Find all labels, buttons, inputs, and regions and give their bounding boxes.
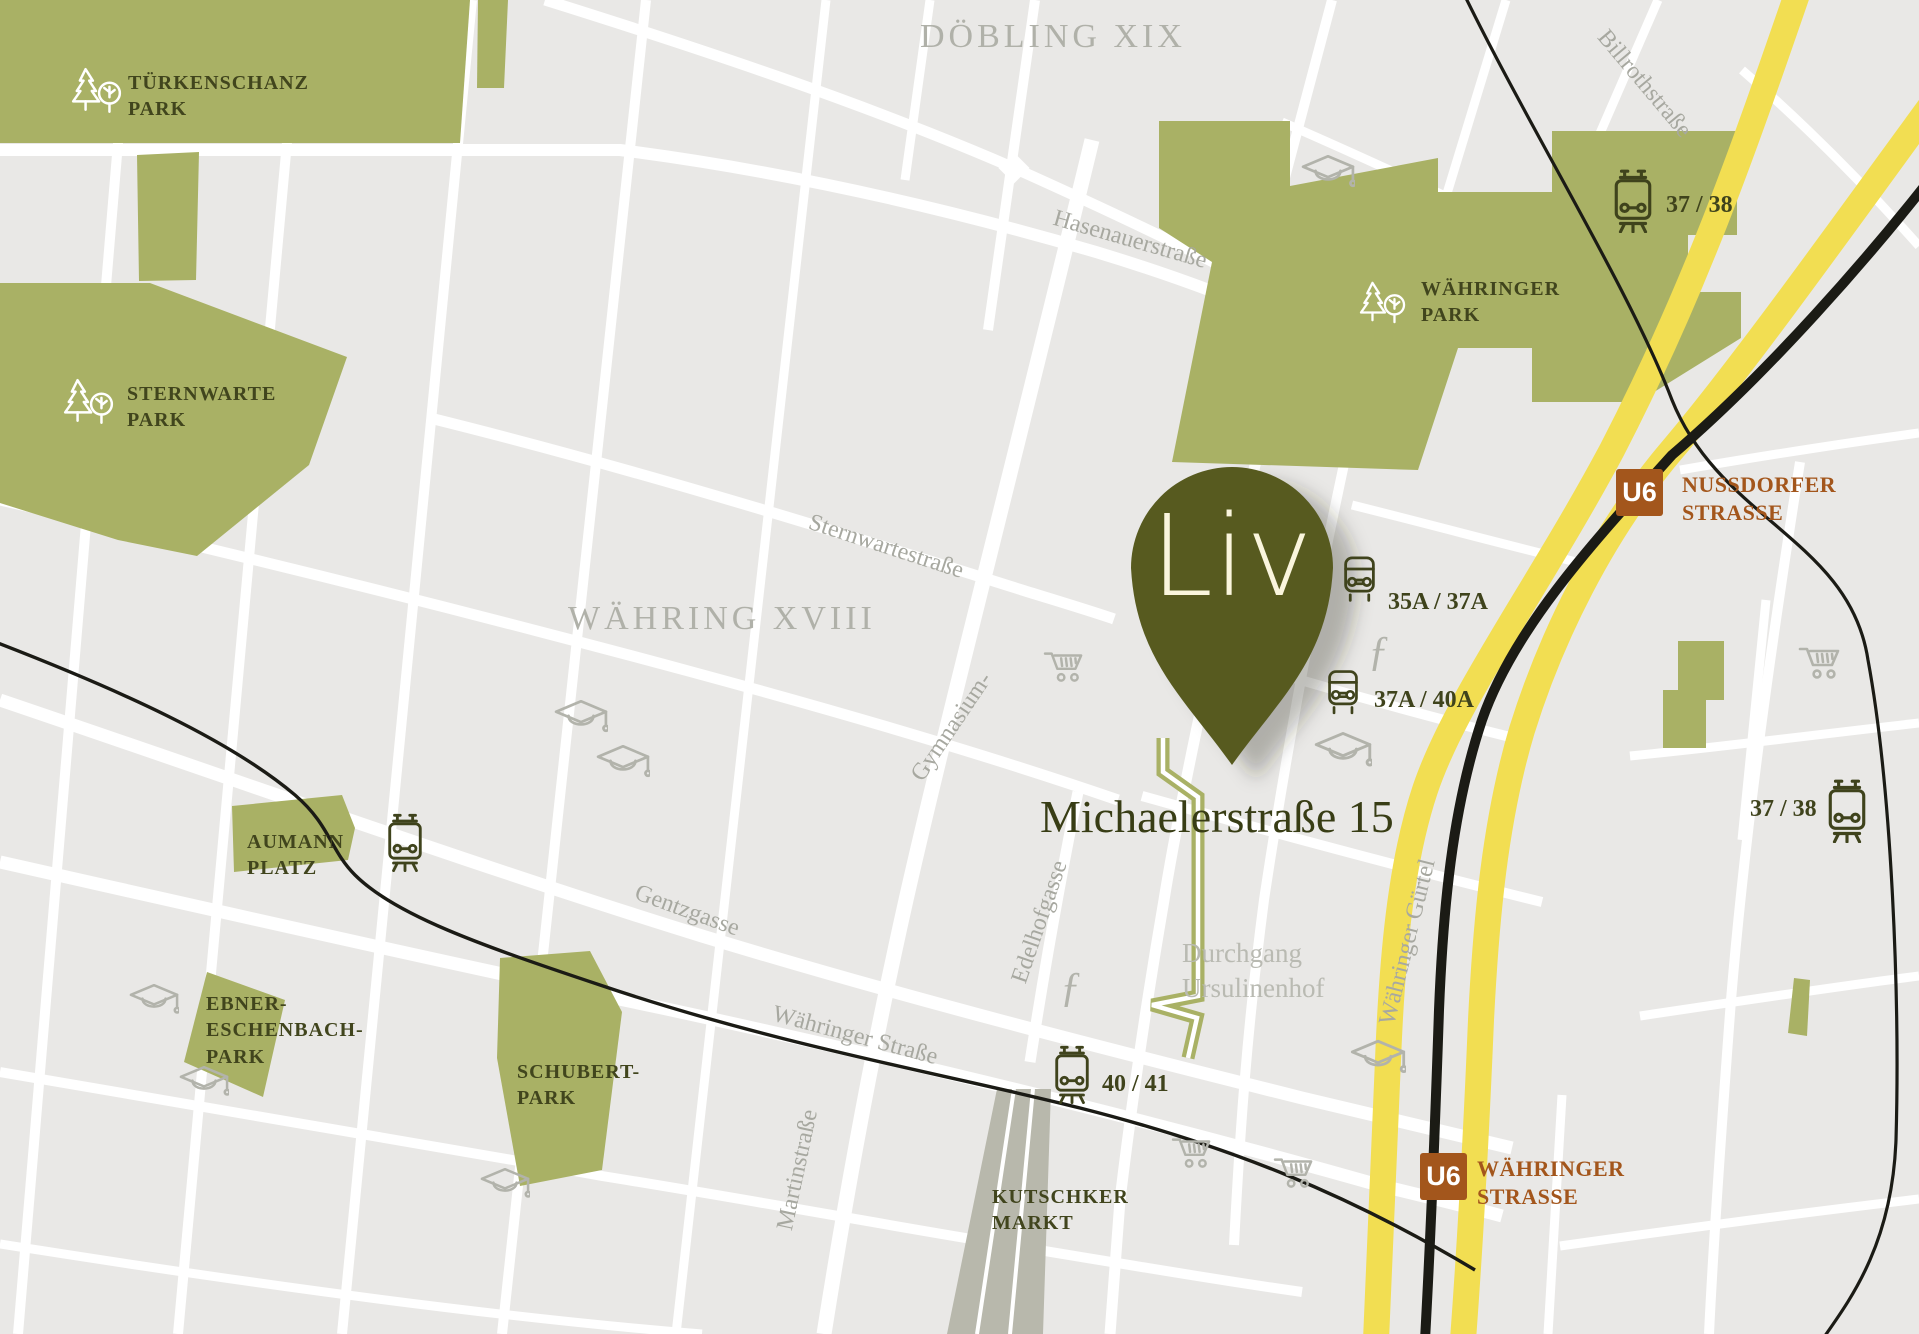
park-label-waehringer: WÄHRINGER PARK [1421, 276, 1560, 329]
city-map: ƒ ƒ DÖBLING XIX WÄHRING XVIII TÜRKENSCHA… [0, 0, 1919, 1334]
bus-route-label-35a-37a: 35A / 37A [1388, 589, 1488, 616]
park-label-sternwarte: STERNWARTE PARK [127, 381, 276, 434]
park-label-schubert: SCHUBERT- PARK [517, 1059, 640, 1112]
passage-label-durchgang-ursulinenhof: Durchgang Ursulinenhof [1182, 936, 1324, 1006]
tram-route-label-40-41: 40 / 41 [1102, 1071, 1169, 1098]
tram-route-label-37-38-east: 37 / 38 [1750, 796, 1817, 823]
music-school-icon: ƒ [1368, 628, 1389, 676]
music-school-icon: ƒ [1060, 964, 1081, 1012]
tram-route-label-37-38-north: 37 / 38 [1666, 192, 1733, 219]
u6-station-badge-nussdorfer: U6 [1616, 469, 1663, 516]
district-label-doebling: DÖBLING XIX [920, 18, 1186, 56]
park-label-ebner-eschenbach: EBNER- ESCHENBACH- PARK [206, 991, 364, 1070]
shopping-cart-icon [1045, 654, 1081, 681]
u6-station-badge-waehringer: U6 [1420, 1153, 1467, 1200]
street-minor [1640, 976, 1919, 1016]
bus-route-label-37a-40a: 37A / 40A [1374, 687, 1474, 714]
school-cap-icon [598, 746, 650, 775]
tram-icon [1830, 781, 1863, 842]
u6-station-label-waehringer-strasse: WÄHRINGER STRASSE [1477, 1155, 1625, 1210]
green-block-east-small [1788, 978, 1810, 1036]
green-block-east [1663, 641, 1724, 748]
market-label-kutschker: KUTSCHKER MARKT [992, 1184, 1129, 1237]
street-minor [18, 0, 130, 1334]
school-cap-icon [131, 985, 179, 1012]
shopping-cart-icon [1800, 649, 1838, 677]
park-label-tuerkenschanz: TÜRKENSCHANZ PARK [128, 70, 309, 123]
u6-station-label-nussdorfer-strasse: NUSSDORFER STRASSE [1682, 471, 1836, 526]
park-tuerkenschanz-strip [477, 0, 508, 88]
street-minor [1709, 462, 1800, 1334]
street-minor [1548, 1095, 1562, 1334]
map-canvas [0, 0, 1919, 1334]
school-cap-icon [1316, 733, 1372, 765]
park-label-aumann-platz: AUMANN PLATZ [247, 829, 344, 882]
address-label-michaelerstrasse-15: Michaelerstraße 15 [1040, 790, 1394, 843]
district-label-waehring: WÄHRING XVIII [568, 600, 876, 638]
tram-icon [1057, 1047, 1088, 1102]
bus-icon [1330, 672, 1357, 713]
shopping-cart-icon [1173, 1140, 1209, 1167]
park-green-column [137, 152, 199, 281]
pin-label-liv[interactable]: Liv [1151, 492, 1314, 622]
